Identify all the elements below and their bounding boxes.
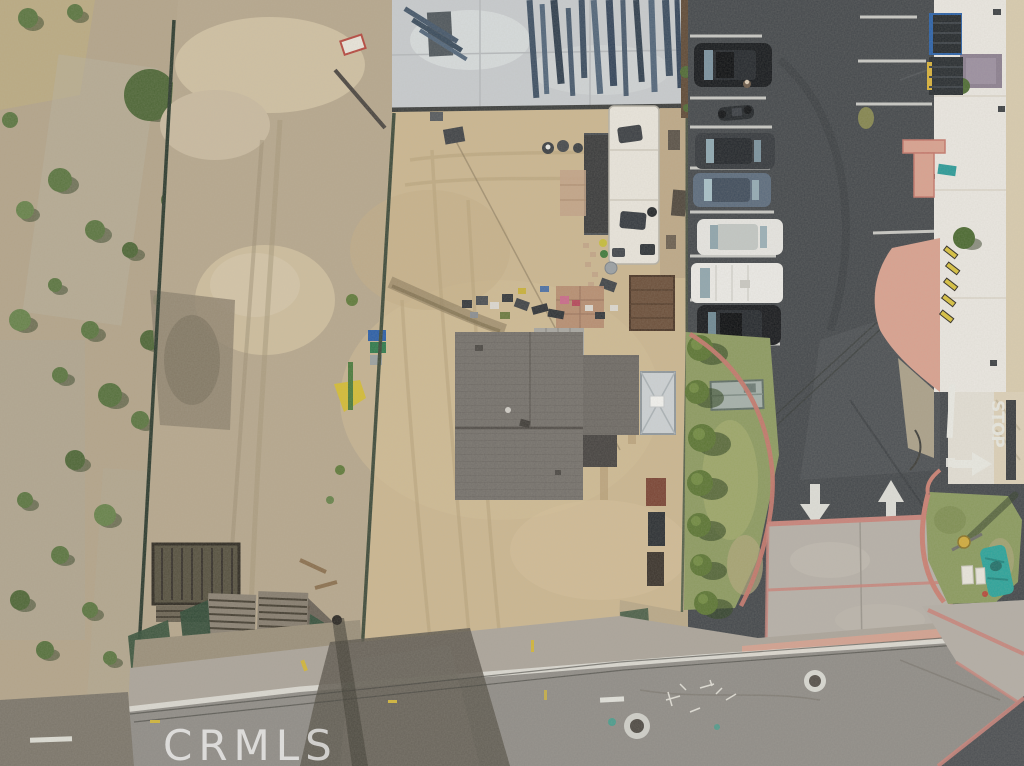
crmls-watermark: CRMLS bbox=[163, 721, 338, 766]
photo-grain bbox=[0, 0, 1024, 766]
aerial-photo: STOP bbox=[0, 0, 1024, 766]
